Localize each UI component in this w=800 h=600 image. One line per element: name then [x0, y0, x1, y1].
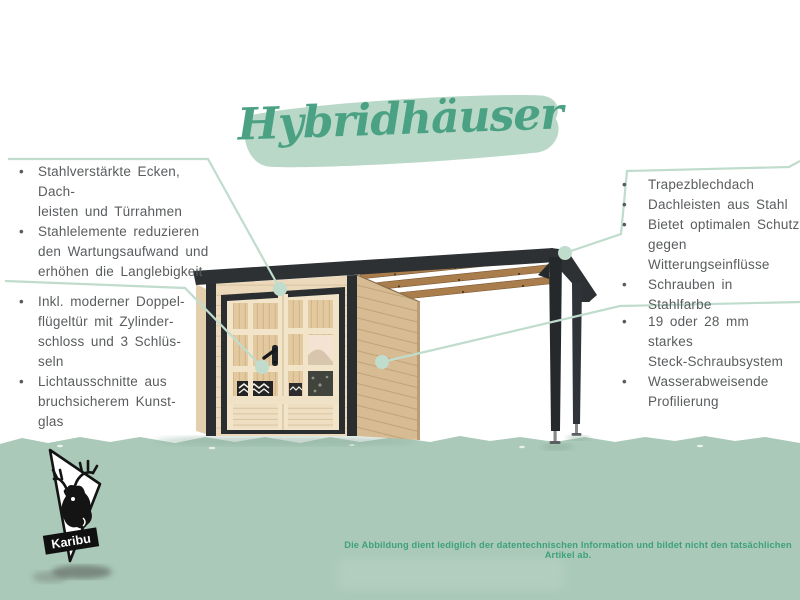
bullet-icon: •	[613, 275, 648, 295]
canopy-post-front	[549, 257, 562, 431]
feature-item: • Trapezblechdach	[613, 175, 800, 195]
feature-text: 19 oder 28 mm starkes Steck-Schraubsyste…	[648, 312, 800, 372]
garden-house-illustration	[193, 248, 597, 444]
door-lower-panel-right	[288, 404, 333, 428]
footer-disclaimer: Die Abbildung dient lediglich der datent…	[338, 540, 798, 560]
anchor-dot-door-lock	[255, 360, 269, 374]
feature-item: • Bietet optimalen Schutz gegen Witterun…	[613, 215, 800, 275]
infographic-page: Karibu Hybridhäuser • Stahlverstärkte Ec…	[0, 0, 800, 600]
anchor-dot-roof-corner	[558, 246, 572, 260]
double-door	[221, 287, 345, 434]
feature-text: Lichtausschnitte aus bruchsicherem Kunst…	[38, 372, 176, 432]
feature-item: • Dachleisten aus Stahl	[613, 195, 800, 215]
side-wall	[357, 275, 420, 440]
feature-text: Dachleisten aus Stahl	[648, 195, 788, 215]
bullet-icon: •	[613, 312, 648, 332]
callout-group-left-top: • Stahlverstärkte Ecken, Dach- leisten u…	[12, 162, 222, 282]
feature-text: Trapezblechdach	[648, 175, 754, 195]
bullet-icon: •	[613, 215, 648, 235]
feature-text: Bietet optimalen Schutz gegen Witterungs…	[648, 215, 800, 275]
anchor-dot-side-wall	[375, 355, 389, 369]
callout-group-left-bottom: • Inkl. moderner Doppel- flügeltür mit Z…	[12, 292, 222, 432]
anchor-dot-door-frame	[273, 282, 287, 296]
feature-item: • Inkl. moderner Doppel- flügeltür mit Z…	[12, 292, 222, 372]
callout-group-right-top: • Trapezblechdach • Dachleisten aus Stah…	[613, 175, 800, 315]
feature-list: • Inkl. moderner Doppel- flügeltür mit Z…	[12, 292, 222, 432]
corner-trim-right	[347, 275, 357, 436]
bullet-icon: •	[613, 195, 648, 215]
feature-item: • Lichtausschnitte aus bruchsicherem Kun…	[12, 372, 222, 432]
feature-list: • Stahlverstärkte Ecken, Dach- leisten u…	[12, 162, 222, 282]
side-wall-edge-shade	[417, 301, 420, 440]
callout-group-right-bottom: • 19 oder 28 mm starkes Steck-Schraubsys…	[613, 312, 800, 412]
canopy-post-rear	[572, 283, 582, 424]
ground-band	[0, 436, 800, 600]
door-lower-panel-left	[233, 404, 278, 428]
bullet-icon: •	[613, 175, 648, 195]
feature-text: Stahlverstärkte Ecken, Dach- leisten und…	[38, 162, 222, 222]
feature-item: • 19 oder 28 mm starkes Steck-Schraubsys…	[613, 312, 800, 372]
bullet-icon: •	[12, 162, 38, 182]
feature-text: Stahlelemente reduzieren den Wartungsauf…	[38, 222, 208, 282]
bullet-icon: •	[613, 372, 648, 392]
feature-item: • Schrauben in Stahlfarbe	[613, 275, 800, 315]
feature-list: • Trapezblechdach • Dachleisten aus Stah…	[613, 175, 800, 315]
feature-text: Inkl. moderner Doppel- flügeltür mit Zyl…	[38, 292, 185, 372]
bullet-icon: •	[12, 372, 38, 392]
feature-item: • Stahlverstärkte Ecken, Dach- leisten u…	[12, 162, 222, 222]
page-title-block: Hybridhäuser	[230, 92, 570, 172]
canopy-posts	[538, 257, 582, 444]
bullet-icon: •	[12, 292, 38, 312]
feature-text: Wasserabweisende Profilierung	[648, 372, 769, 412]
roof-fascia	[193, 248, 556, 285]
feature-item: • Wasserabweisende Profilierung	[613, 372, 800, 412]
feature-text: Schrauben in Stahlfarbe	[648, 275, 800, 315]
feature-list: • 19 oder 28 mm starkes Steck-Schraubsys…	[613, 312, 800, 412]
feature-item: • Stahlelemente reduzieren den Wartungsa…	[12, 222, 222, 282]
page-title: Hybridhäuser	[229, 88, 571, 151]
bullet-icon: •	[12, 222, 38, 242]
